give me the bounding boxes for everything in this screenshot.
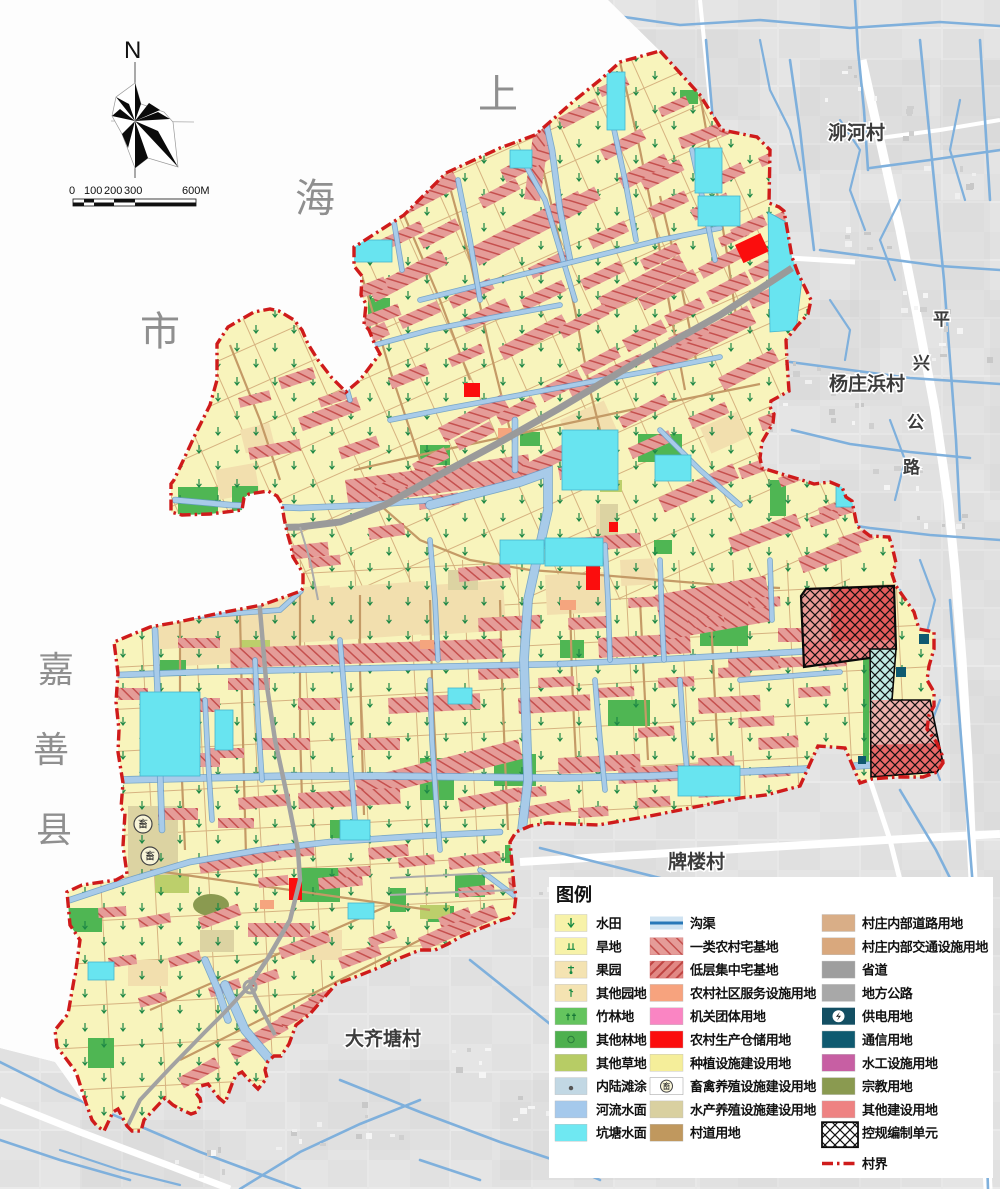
svg-text:畜禽养殖设施建设用地: 畜禽养殖设施建设用地 [690,1079,816,1094]
svg-text:竹林地: 竹林地 [595,1009,634,1024]
svg-text:通信用地: 通信用地 [862,1033,913,1048]
svg-text:河流水面: 河流水面 [596,1102,647,1117]
svg-text:大齐塘村: 大齐塘村 [345,1027,421,1050]
svg-text:沟渠: 沟渠 [690,916,717,931]
svg-text:路: 路 [903,457,921,477]
svg-text:嘉: 嘉 [38,650,74,690]
svg-text:海: 海 [295,176,335,221]
svg-text:其他林地: 其他林地 [596,1033,647,1048]
svg-text:畜: 畜 [138,818,148,831]
svg-text:果园: 果园 [595,963,622,978]
svg-text:杨庄浜村: 杨庄浜村 [829,372,905,395]
svg-text:村庄内部道路用地: 村庄内部道路用地 [862,916,963,931]
svg-text:控规编制单元: 控规编制单元 [862,1126,938,1141]
svg-text:兴: 兴 [913,354,930,373]
svg-text:农村生产仓储用地: 农村生产仓储用地 [689,1033,791,1048]
svg-text:畜: 畜 [663,1081,671,1091]
svg-text:供电用地: 供电用地 [861,1009,913,1024]
svg-text:坑塘水面: 坑塘水面 [596,1126,647,1141]
svg-text:水产养殖设施建设用地: 水产养殖设施建设用地 [690,1102,816,1117]
svg-text:善: 善 [33,730,69,770]
svg-text:N: N [124,37,141,64]
svg-text:省道: 省道 [861,963,888,978]
svg-text:一类农村宅基地: 一类农村宅基地 [690,939,779,954]
svg-text:种植设施建设用地: 种植设施建设用地 [689,1056,791,1071]
svg-text:牌楼村: 牌楼村 [668,850,725,873]
svg-text:上: 上 [478,72,518,117]
svg-text:其他建设用地: 其他建设用地 [862,1102,938,1117]
svg-text:市: 市 [140,309,180,354]
svg-text:300: 300 [124,185,142,197]
svg-text:泖河村: 泖河村 [828,121,885,144]
svg-text:机关团体用地: 机关团体用地 [690,1009,766,1024]
svg-text:村庄内部交通设施用地: 村庄内部交通设施用地 [862,939,988,954]
svg-text:农村社区服务设施用地: 农村社区服务设施用地 [689,986,816,1001]
svg-text:内陆滩涂: 内陆滩涂 [596,1079,648,1094]
svg-text:0: 0 [69,185,75,197]
svg-text:低层集中宅基地: 低层集中宅基地 [689,963,779,978]
svg-text:水田: 水田 [596,916,622,931]
svg-text:水工设施用地: 水工设施用地 [862,1056,938,1071]
svg-text:畜: 畜 [145,850,155,863]
svg-text:图例: 图例 [556,884,592,905]
svg-text:村界: 村界 [862,1157,888,1172]
svg-text:其他草地: 其他草地 [596,1056,647,1071]
svg-text:旱地: 旱地 [596,939,622,954]
svg-text:地方公路: 地方公路 [862,986,914,1001]
svg-text:村道用地: 村道用地 [690,1126,741,1141]
svg-text:平: 平 [933,310,950,329]
svg-text:县: 县 [36,810,72,850]
svg-text:100: 100 [84,185,102,197]
svg-text:200: 200 [104,185,122,197]
svg-text:宗教用地: 宗教用地 [862,1079,913,1094]
svg-text:公: 公 [907,413,924,432]
svg-text:其他园地: 其他园地 [596,986,647,1001]
svg-text:600M: 600M [182,185,210,197]
